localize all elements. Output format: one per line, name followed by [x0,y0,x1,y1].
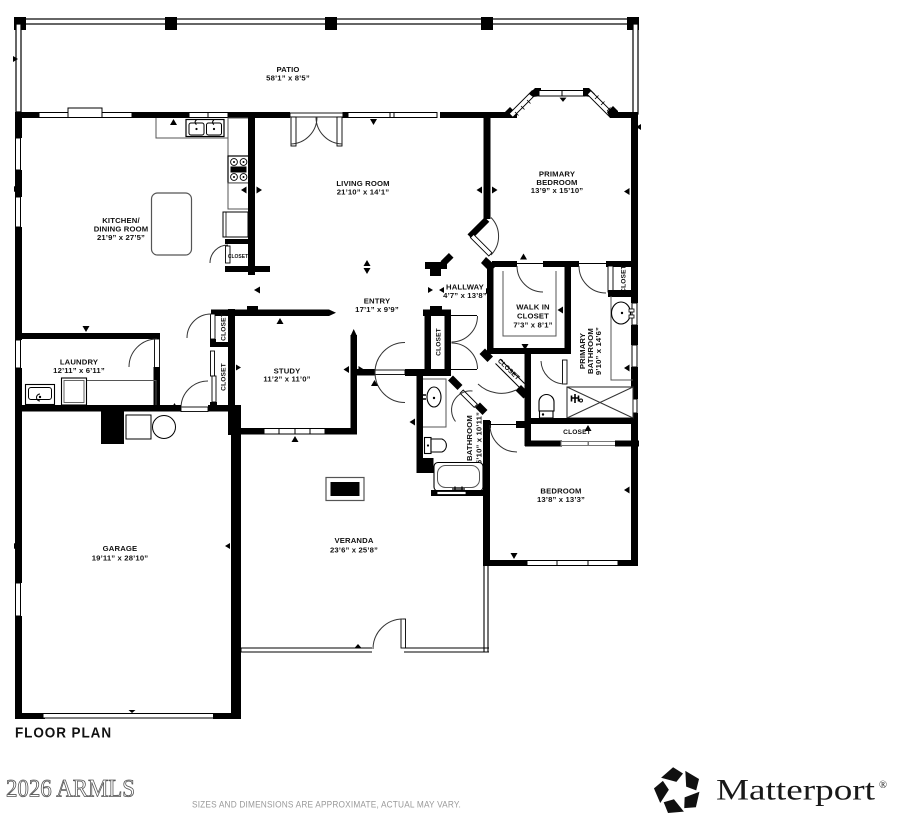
svg-text:CLOSET: CLOSET [496,358,521,382]
svg-text:21’10” x 14’1”: 21’10” x 14’1” [337,187,390,196]
svg-text:4’7” x 13’8”: 4’7” x 13’8” [443,291,487,300]
svg-text:58’1” x 8’5”: 58’1” x 8’5” [266,74,310,83]
svg-text:13’9” x 15’10”: 13’9” x 15’10” [531,186,584,195]
svg-text:13’8” x 13’3”: 13’8” x 13’3” [537,495,585,504]
svg-text:GARAGE: GARAGE [103,544,138,553]
svg-text:CLOSET: CLOSET [221,313,228,341]
svg-text:®: ® [879,780,887,791]
svg-text:17’1” x 9’9”: 17’1” x 9’9” [355,305,399,314]
svg-text:CLOSET: CLOSET [517,312,549,321]
svg-text:9’10” x 14’6”: 9’10” x 14’6” [594,327,603,375]
svg-text:CLOSET: CLOSET [221,363,228,391]
svg-text:23’6” x 25’8”: 23’6” x 25’8” [330,546,378,555]
svg-text:CLOSET: CLOSET [563,429,591,436]
svg-text:21’9” x 27’5”: 21’9” x 27’5” [97,233,145,242]
svg-text:VERANDA: VERANDA [334,536,373,545]
svg-text:11’2” x 11’0”: 11’2” x 11’0” [263,375,310,384]
svg-text:WALK IN: WALK IN [516,303,550,312]
svg-text:CLOSET: CLOSET [621,265,628,293]
svg-text:2026 ARMLS: 2026 ARMLS [6,774,135,803]
svg-text:12’11” x 6’11”: 12’11” x 6’11” [53,366,105,375]
svg-text:BATHROOM: BATHROOM [465,415,474,461]
svg-text:SIZES AND DIMENSIONS ARE APPRO: SIZES AND DIMENSIONS ARE APPROXIMATE, AC… [192,799,461,810]
svg-text:CLOSET: CLOSET [436,328,443,356]
svg-text:FLOOR PLAN: FLOOR PLAN [15,726,112,742]
svg-text:Matterport: Matterport [716,775,876,807]
svg-text:19’11” x 28’10”: 19’11” x 28’10” [92,554,149,563]
svg-text:7’3” x 8’1”: 7’3” x 8’1” [513,321,552,330]
svg-text:5’10” x 10’11”: 5’10” x 10’11” [475,412,484,464]
svg-text:CLOSET: CLOSET [228,254,248,260]
